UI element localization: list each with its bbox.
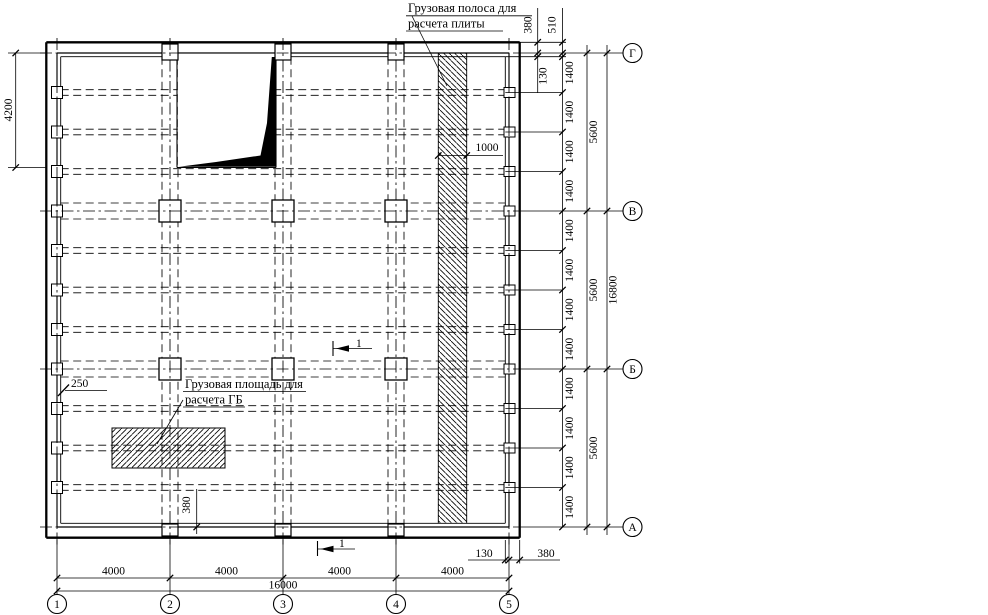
bottom-bay-dim-label: 4000: [328, 566, 351, 578]
section-cut-label: 1: [339, 538, 345, 550]
opening-fill: [178, 54, 275, 167]
drawing-canvas: 1400140014001400140014001400140014001400…: [0, 0, 988, 615]
right-bay-label: 5600: [588, 278, 600, 301]
right-bay-label: 5600: [588, 120, 600, 143]
bottom-bay-dim-label: 4000: [102, 566, 125, 578]
bottom-bay-dim-label: 4000: [215, 566, 238, 578]
area-note-line2: расчета ГБ: [185, 393, 243, 407]
right-rib-dim-label: 1400: [564, 496, 576, 519]
rib-offset-label: 380: [181, 496, 193, 514]
bottom-first-dim-label: 130: [475, 548, 493, 560]
right-rib-dim-label: 1400: [564, 140, 576, 163]
top-wall-plus-dim-label: 510: [547, 16, 559, 34]
load-area-hatch: [112, 428, 225, 468]
right-rib-dim-label: 1400: [564, 259, 576, 282]
right-rib-dim-label: 1400: [564, 417, 576, 440]
right-rib-dim-label: 1400: [564, 338, 576, 361]
strip-width-label: 1000: [476, 142, 499, 154]
grid-bubble-label: А: [628, 522, 637, 534]
grid-bubble-label: Г: [629, 48, 636, 60]
right-rib-dim-label: 1400: [564, 298, 576, 321]
section-mark-top: 1: [333, 338, 372, 356]
section-arrow: [321, 546, 334, 552]
right-rib-dim-label: 1400: [564, 180, 576, 203]
grid-bubble-label: В: [629, 206, 637, 218]
grid-bubble-label: 3: [280, 599, 286, 611]
generated-linework: 1400140014001400140014001400140014001400…: [40, 8, 642, 614]
bottom-total-label: 16000: [269, 580, 298, 592]
grid-bubble-label: 4: [393, 599, 399, 611]
bottom-wall-dim-label: 380: [537, 548, 555, 560]
strip-note-line1: Грузовая полоса для: [408, 1, 517, 15]
left-offset-label: 250: [71, 378, 89, 390]
right-rib-dim-label: 1400: [564, 377, 576, 400]
grid-bubble-label: 2: [167, 599, 173, 611]
grid-bubble-label: 1: [54, 599, 60, 611]
area-note-line1: Грузовая площадь для: [185, 377, 303, 391]
load-strip-hatch: [438, 53, 466, 523]
right-rib-dim-label: 1400: [564, 61, 576, 84]
left-dim-label: 4200: [3, 98, 15, 121]
grid-bubble-label: Б: [629, 364, 636, 376]
right-rib-dim-label: 1400: [564, 101, 576, 124]
floor-plan-drawing: 1400140014001400140014001400140014001400…: [0, 0, 988, 615]
strip-note-line2: расчета плиты: [408, 17, 485, 31]
section-cut-label: 1: [356, 338, 362, 350]
bottom-bay-dim-label: 4000: [441, 566, 464, 578]
right-total-label: 16800: [608, 275, 620, 304]
right-rib-dim-label: 1400: [564, 456, 576, 479]
section-arrow: [336, 345, 349, 351]
grid-bubble-label: 5: [506, 599, 512, 611]
right-first-dim-label: 130: [538, 67, 550, 85]
top-wall-dim-label: 380: [523, 16, 535, 34]
right-bay-label: 5600: [588, 436, 600, 459]
right-rib-dim-label: 1400: [564, 219, 576, 242]
section-mark-bottom: 1: [318, 538, 356, 556]
